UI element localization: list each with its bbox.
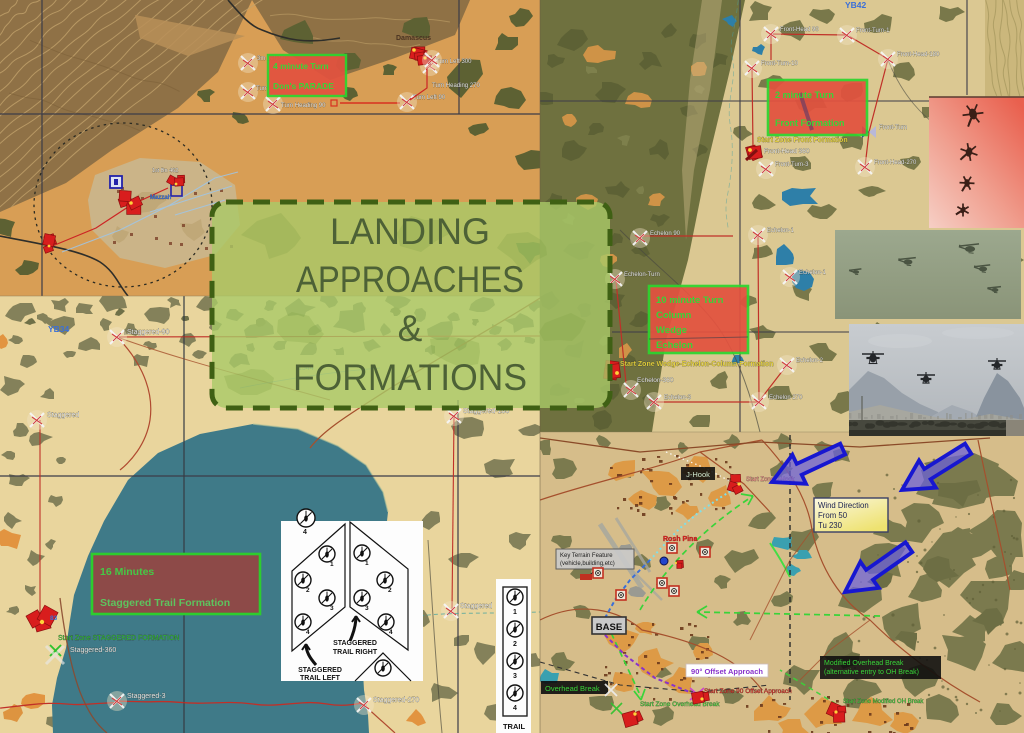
svg-text:From 50: From 50	[818, 511, 848, 520]
svg-text:1: 1	[330, 561, 334, 568]
svg-text:1st Bn 462: 1st Bn 462	[152, 168, 178, 174]
svg-text:3: 3	[513, 673, 517, 680]
svg-text:TRAIL LEFT: TRAIL LEFT	[300, 675, 341, 682]
svg-text:Front Formation: Front Formation	[775, 118, 845, 128]
svg-text:Staggered-360: Staggered-360	[70, 647, 116, 654]
svg-text:Turn: Turn	[256, 86, 268, 92]
svg-text:Staggered-90: Staggered-90	[127, 329, 170, 336]
svg-text:1: 1	[513, 609, 517, 616]
svg-text:TRAIL: TRAIL	[503, 722, 525, 731]
svg-text:1: 1	[365, 560, 369, 567]
svg-text:Turn Heading 90: Turn Heading 90	[281, 103, 326, 109]
svg-text:TRAIL RIGHT: TRAIL RIGHT	[333, 649, 378, 656]
svg-text:2 minute Turn: 2 minute Turn	[775, 90, 834, 100]
svg-text:Front-Turn-3: Front-Turn-3	[775, 162, 809, 168]
svg-text:Echelon-2: Echelon-2	[796, 358, 824, 364]
svg-text:Tu 230: Tu 230	[818, 521, 843, 530]
svg-text:(vehicle,building,etc): (vehicle,building,etc)	[560, 561, 615, 567]
svg-text:90° Offset Approach: 90° Offset Approach	[691, 667, 763, 676]
svg-text:Modified Overhead Break: Modified Overhead Break	[824, 660, 904, 667]
svg-text:4: 4	[389, 629, 393, 636]
svg-text:4: 4	[306, 629, 310, 636]
svg-text:Echelon-1: Echelon-1	[799, 270, 827, 276]
svg-text:Don's PARADE: Don's PARADE	[273, 81, 334, 91]
svg-text:Wind Direction: Wind Direction	[818, 501, 869, 510]
svg-text:Turn Heading 270: Turn Heading 270	[432, 83, 480, 89]
svg-text:Echelon: Echelon	[656, 340, 693, 351]
svg-text:STAGGERED: STAGGERED	[298, 667, 342, 674]
svg-text:Staggered-3: Staggered-3	[127, 693, 166, 700]
svg-text:Front-Head 90: Front-Head 90	[780, 27, 819, 33]
svg-text:BASE: BASE	[596, 622, 622, 633]
svg-text:Echelon 270: Echelon 270	[769, 395, 803, 401]
svg-text:Front-Head-270: Front-Head-270	[874, 160, 917, 166]
svg-text:Start Zone 90 Offset Approach: Start Zone 90 Offset Approach	[704, 688, 792, 695]
svg-text:APPROACHES: APPROACHES	[296, 259, 524, 300]
svg-text:Rosh Pina: Rosh Pina	[663, 536, 697, 543]
svg-text:&: &	[398, 308, 423, 349]
svg-text:Front-Turn: Front-Turn	[879, 125, 907, 131]
svg-text:J-Hook: J-Hook	[686, 470, 710, 479]
svg-text:3: 3	[330, 605, 334, 612]
svg-text:Staggered-270: Staggered-270	[373, 697, 419, 704]
svg-text:FORMATIONS: FORMATIONS	[293, 357, 527, 398]
svg-text:Start Zone Modified OH Break: Start Zone Modified OH Break	[843, 699, 924, 705]
svg-text:Staggered Trail Formation: Staggered Trail Formation	[100, 597, 230, 609]
svg-text:Front-Turn-10: Front-Turn-10	[761, 61, 798, 67]
svg-text:Front-Turn-1: Front-Turn-1	[856, 28, 890, 34]
svg-text:Echelon-360: Echelon-360	[637, 377, 674, 384]
svg-text:Staggered: Staggered	[47, 412, 79, 419]
svg-text:Echelon-Turn: Echelon-Turn	[624, 272, 660, 278]
svg-text:Start Zone Wedge-Echelon-Colum: Start Zone Wedge-Echelon-Column Formatio…	[620, 361, 773, 368]
svg-text:Column: Column	[656, 310, 692, 321]
svg-text:10 minute Turn: 10 minute Turn	[656, 295, 724, 306]
svg-text:Start Zone Overhead Break: Start Zone Overhead Break	[640, 701, 720, 708]
svg-text:(alternative entry to OH Break: (alternative entry to OH Break)	[824, 669, 919, 676]
svg-text:YB34: YB34	[48, 324, 70, 334]
svg-text:Front-Head 360: Front-Head 360	[764, 148, 810, 155]
svg-text:Staggered: Staggered	[460, 603, 492, 610]
svg-text:Echelon-1: Echelon-1	[767, 228, 795, 234]
svg-text:LANDING: LANDING	[330, 211, 490, 252]
svg-text:Echelon-3: Echelon-3	[664, 395, 692, 401]
svg-text:Damascus: Damascus	[396, 35, 431, 42]
svg-text:3: 3	[365, 605, 369, 612]
svg-text:YB42: YB42	[845, 0, 867, 10]
svg-text:Overhead Break: Overhead Break	[545, 684, 600, 693]
svg-text:Turn Left 90: Turn Left 90	[413, 95, 446, 101]
svg-text:4: 4	[513, 705, 517, 712]
svg-text:Start Zone Front Formation: Start Zone Front Formation	[757, 137, 848, 144]
svg-text:Wedge: Wedge	[656, 325, 687, 336]
svg-text:Mazzah: Mazzah	[150, 195, 172, 201]
svg-text:STAGGERED: STAGGERED	[333, 640, 377, 647]
svg-text:4 minute Turn: 4 minute Turn	[273, 61, 329, 71]
svg-text:Echelon 90: Echelon 90	[650, 231, 681, 237]
svg-text:83: 83	[50, 615, 58, 622]
svg-text:Key Terrain Feature: Key Terrain Feature	[560, 553, 613, 559]
svg-text:Front-Head-180: Front-Head-180	[897, 52, 940, 58]
svg-text:Start Zone STAGGERED FORMATION: Start Zone STAGGERED FORMATION	[58, 635, 179, 642]
svg-text:2: 2	[388, 587, 392, 594]
svg-text:2: 2	[306, 587, 310, 594]
svg-text:2: 2	[513, 641, 517, 648]
svg-text:16 Minutes: 16 Minutes	[100, 566, 154, 578]
svg-text:4: 4	[303, 529, 307, 536]
